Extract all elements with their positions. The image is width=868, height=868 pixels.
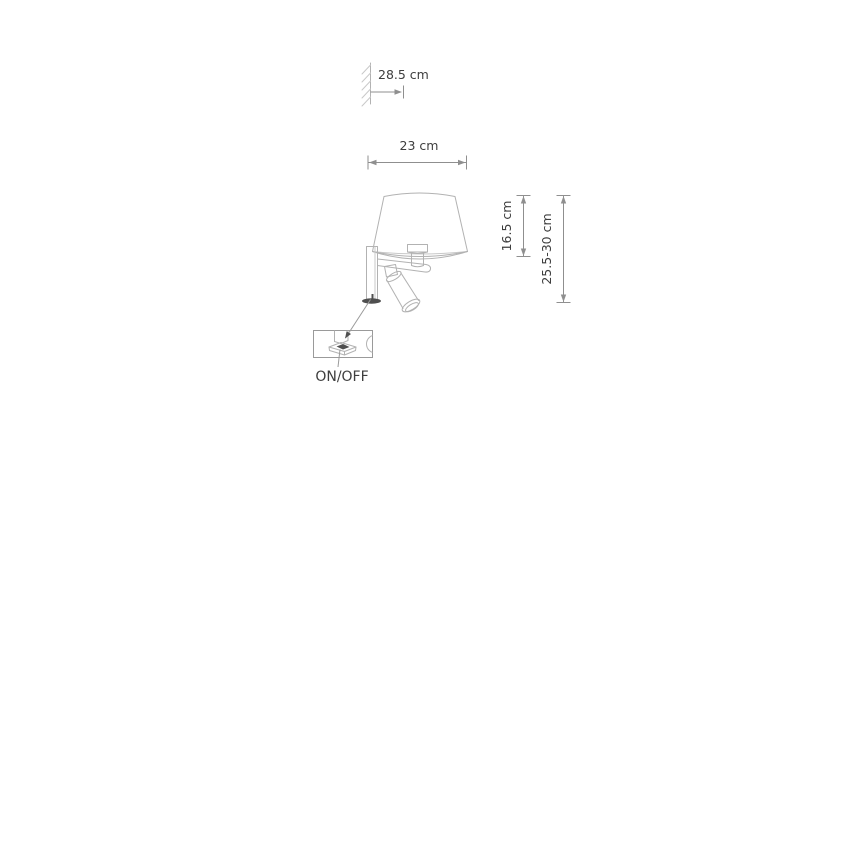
- wall-surface-hatch: [362, 63, 371, 106]
- reading-spotlight: [385, 265, 422, 315]
- switch-detail-callout: ON/OFF: [314, 300, 385, 386]
- wall-distance-label: 28.5 cm: [378, 67, 429, 82]
- shade-width-label: 23 cm: [400, 138, 439, 153]
- onoff-label: ON/OFF: [315, 369, 368, 385]
- diagram-canvas: 28.5 cm 23 cm: [0, 0, 868, 868]
- overall-height-label: 25.5-30 cm: [539, 213, 554, 284]
- lamp-shade: [373, 193, 468, 259]
- shade-width-dimension: 23 cm: [368, 138, 467, 170]
- wall-bracket-plate: [362, 247, 381, 304]
- bracket-base: [362, 298, 381, 303]
- shade-height-label: 16.5 cm: [499, 201, 514, 252]
- detail-switch: [329, 343, 356, 356]
- detail-box-content: [329, 331, 385, 356]
- lamp-drawing: [362, 193, 468, 314]
- dimension-drawing: 28.5 cm 23 cm: [0, 0, 868, 868]
- label-leader-line: [338, 350, 340, 368]
- shade-height-dimension: 16.5 cm: [499, 196, 531, 257]
- wall-distance-dimension: 28.5 cm: [371, 67, 429, 99]
- overall-height-dimension: 25.5-30 cm: [539, 196, 571, 303]
- switch-leader-line: [345, 300, 371, 339]
